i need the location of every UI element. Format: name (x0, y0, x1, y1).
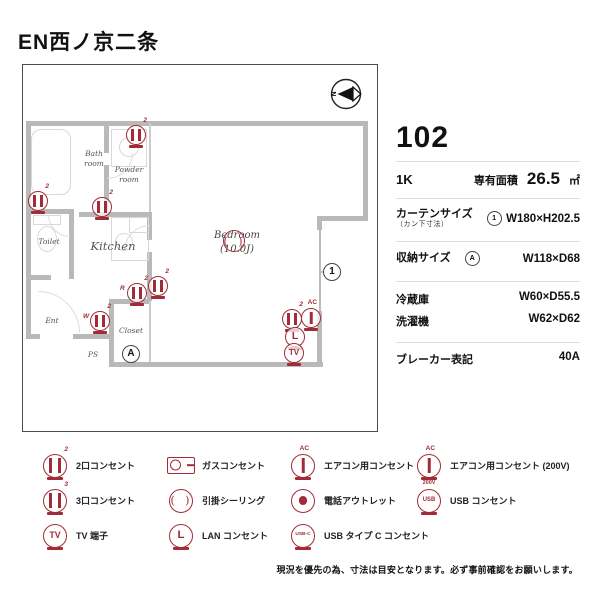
legend-item: AC エアコン用コンセント (290, 448, 429, 483)
legend-icon-slot: USB-C (290, 524, 316, 548)
ceiling-light-icon: ( ) (169, 489, 193, 513)
legend-label: 電話アウトレット (324, 494, 396, 507)
legend-item: ガスコンセント (168, 448, 268, 483)
page-title: EN西ノ京二条 (18, 26, 159, 56)
outlet-2-bedroom-west-icon: 2 (148, 276, 168, 296)
curtain-marker-slot: 1 (487, 211, 502, 226)
washer-label: 洗濯機 (396, 313, 429, 329)
storage-marker-slot: A (465, 251, 480, 266)
ceiling-light-icon: ( ) (223, 230, 245, 252)
storage-size-marker-icon: A (465, 251, 480, 266)
washer-value: W62×D62 (529, 313, 580, 329)
outlet-2-icon: 2 (43, 454, 67, 478)
legend-item: 電話アウトレット (290, 483, 429, 518)
area-unit: ㎡ (569, 172, 580, 188)
legend-item: USB USB コンセント (416, 483, 570, 518)
legend-item: 3 3口コンセント (42, 483, 135, 518)
legend-icon-slot: L (168, 524, 194, 548)
legend-icon-slot: AC (290, 454, 316, 478)
tv-terminal-icon: TV (43, 524, 67, 548)
outlet-2-toilet-icon: 2 (28, 191, 48, 211)
legend-label: 3口コンセント (76, 494, 135, 507)
curtain-size-label: カーテンサイズ （カン下寸法） (396, 208, 473, 231)
floor-plan: N Bathroom Powderroom Toilet Kitchen Bed… (22, 64, 378, 432)
legend-item: 2 2口コンセント (42, 448, 135, 483)
unit-number: 102 (396, 122, 580, 154)
legend-label: USB コンセント (450, 494, 517, 507)
storage-size-value: W118×D68 (523, 253, 580, 265)
outlet-2-powder-icon: 2 (126, 125, 146, 145)
disclaimer-note: 現況を優先の為、寸法は目安となります。必ず事前確認をお願いします。 (276, 563, 578, 576)
plan-icon-layer: 2222R22W2ACLTV( )1A (23, 65, 377, 431)
ac-200v-outlet-icon: AC200V (417, 454, 441, 478)
legend-label: エアコン用コンセント (200V) (450, 459, 570, 472)
curtain-marker-1-icon: 1 (323, 263, 341, 281)
outlet-2-bedroom-east-icon: 2 (282, 309, 302, 329)
breaker-label: ブレーカー表記 (396, 351, 473, 367)
usb-type-c-outlet-icon: USB-C (291, 524, 315, 548)
storage-marker-a-icon: A (122, 345, 140, 363)
area-value: 26.5 (527, 169, 560, 189)
unit-info-panel: 102 1K 専有面積 26.5 ㎡ カーテンサイズ （カン下寸法） 1 W18… (396, 122, 580, 370)
tv-terminal-icon: TV (284, 343, 304, 363)
ac-outlet-icon: AC (301, 308, 321, 328)
legend-icon-slot: 3 (42, 489, 68, 513)
legend-label: エアコン用コンセント (324, 459, 414, 472)
legend-icon-slot (290, 489, 316, 513)
fridge-label: 冷蔵庫 (396, 291, 429, 307)
usb-outlet-icon: USB (417, 489, 441, 513)
legend-label: ガスコンセント (202, 459, 265, 472)
legend-item: L LAN コンセント (168, 518, 268, 553)
outlet-2-washer-icon: 2W (90, 311, 110, 331)
legend-icon-slot: USB (416, 489, 442, 513)
fridge-value: W60×D55.5 (519, 291, 580, 307)
outlet-2-kitchen-icon: 2 (92, 197, 112, 217)
lan-outlet-icon: L (169, 524, 193, 548)
storage-size-label: 収納サイズ (396, 252, 451, 266)
legend-icon-slot: TV (42, 524, 68, 548)
legend-icon-slot: 2 (42, 454, 68, 478)
legend-item: ( ) 引掛シーリング (168, 483, 268, 518)
legend: 2 2口コンセント 3 3口コンセント TV TV 端子 ガスコンセント ( )… (0, 448, 600, 558)
legend-label: TV 端子 (76, 529, 108, 542)
breaker-value: 40A (559, 351, 580, 367)
gas-outlet-icon (167, 457, 194, 474)
legend-icon-slot: ( ) (168, 489, 194, 513)
legend-label: 2口コンセント (76, 459, 135, 472)
ac-outlet-icon: AC (291, 454, 315, 478)
outlet-3-icon: 3 (43, 489, 67, 513)
phone-outlet-icon (291, 489, 315, 513)
legend-label: 引掛シーリング (202, 494, 265, 507)
legend-label: LAN コンセント (202, 529, 268, 542)
legend-item: USB-C USB タイプ C コンセント (290, 518, 429, 553)
unit-layout-type: 1K (396, 172, 413, 187)
legend-icon-slot (168, 457, 194, 474)
legend-label: USB タイプ C コンセント (324, 529, 429, 542)
area-label: 専有面積 (474, 172, 518, 188)
curtain-size-value: W180×H202.5 (506, 213, 580, 225)
legend-item: TV TV 端子 (42, 518, 135, 553)
legend-item: AC200V エアコン用コンセント (200V) (416, 448, 570, 483)
legend-icon-slot: AC200V (416, 454, 442, 478)
outlet-2-fridge-icon: 2R (127, 283, 147, 303)
curtain-size-marker-icon: 1 (487, 211, 502, 226)
